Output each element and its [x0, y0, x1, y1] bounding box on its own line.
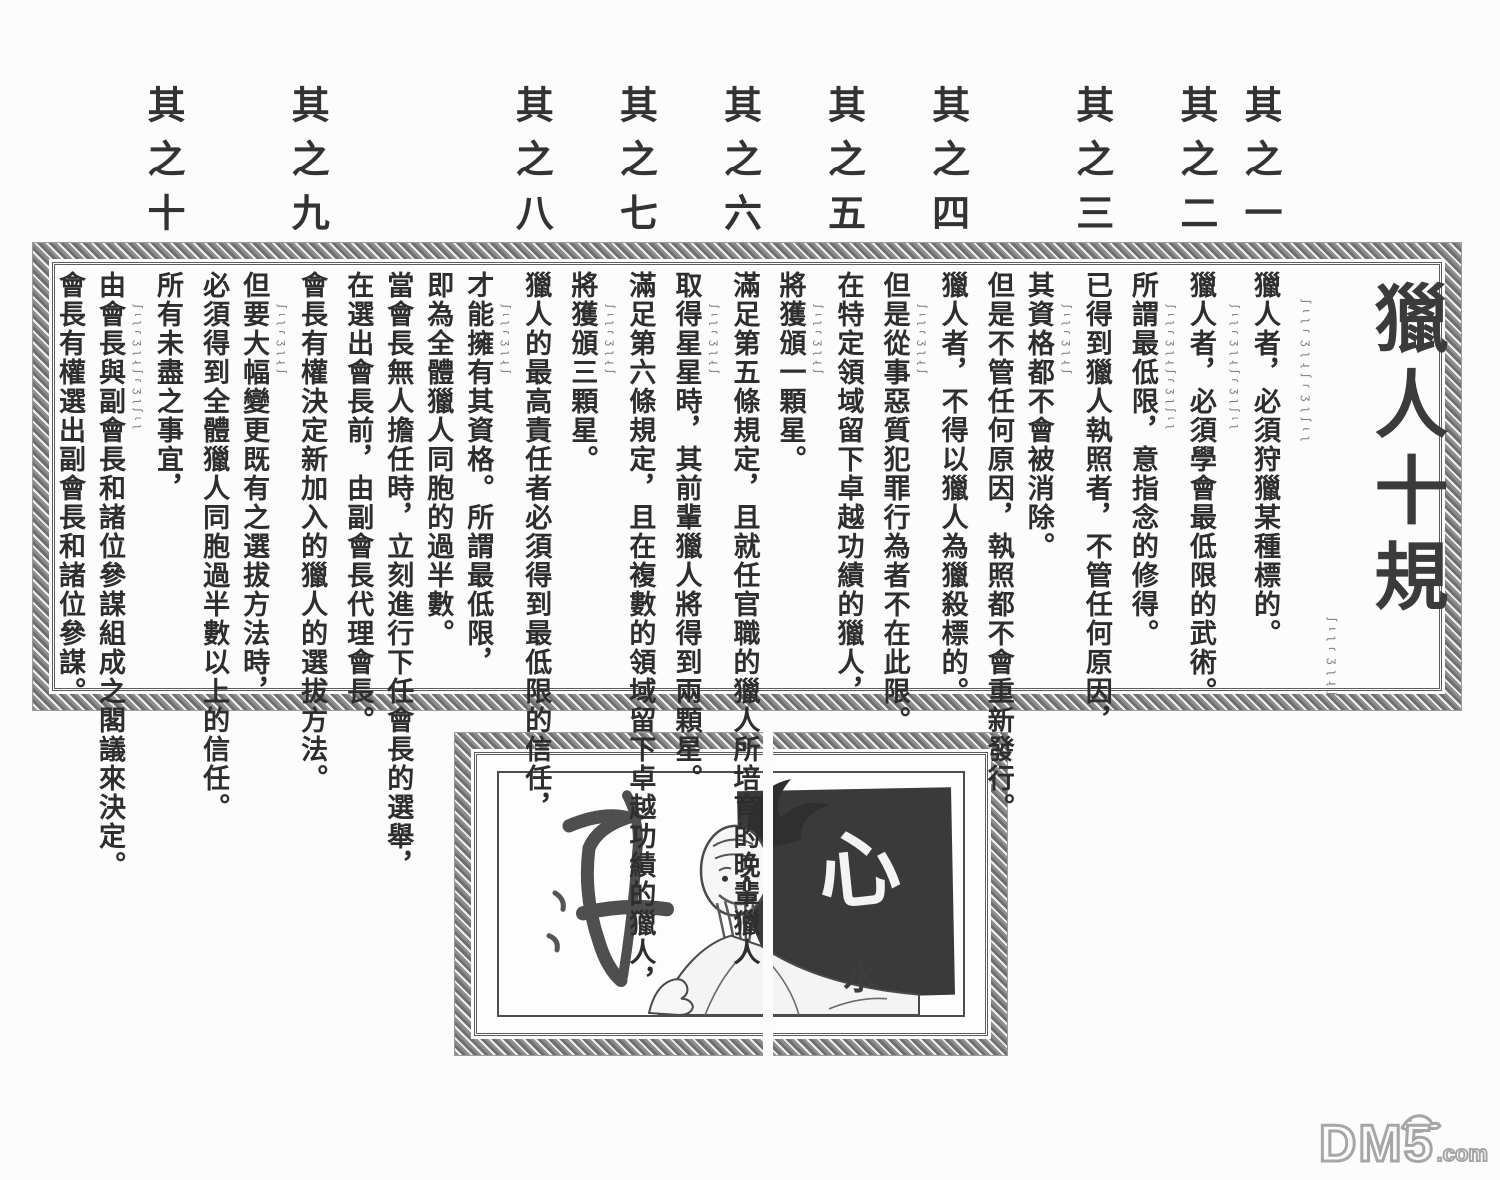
rule-5-header: 其之五 [822, 85, 864, 253]
dm5-watermark: DM5.com [1319, 1114, 1488, 1174]
rule-column: 當會長無人擔任時，立刻進行下任會長的選舉， [383, 271, 413, 880]
rule-column: 滿足第六條規定，且在複數的領域留下卓越功績的獵人， [625, 271, 655, 996]
rule-8-body: 獵人的最高責任者必須得到最低限的信任， ʃɩʅɾʒʅɻʃ 才能擁有其資格。所謂最… [333, 271, 551, 880]
rule-column: 即為全體獵人同胞的過半數。 [423, 271, 453, 880]
rule-column: 但要大幅變更既有之選拔方法時， [239, 271, 269, 822]
hunter-script-column: ʃɩʅɾʒʅɻʃɾʒʅʃɩʅ [1229, 305, 1240, 648]
rule-column: 獵人者，不得以獵人為獵殺標的。 [938, 271, 968, 735]
rule-column: 在特定領域留下卓越功績的獵人， [834, 271, 864, 706]
rule-column: 由會長與副會長和諸位參謀組成之閣議來決定。 [95, 271, 125, 880]
hunter-script-column: ʃɩʅɾʒʅɻʃ [604, 305, 615, 996]
rule-1: 其之一 獵人者，必須狩獵某種標的。 ʃɩʅɾʒʅɻʃɾʒʅʃɩʅ [1222, 85, 1280, 648]
rule-column: 取得星星時，其前輩獵人將得到兩顆星。 [671, 271, 701, 967]
rule-column: 才能擁有其資格。所謂最低限， [463, 271, 493, 880]
rule-column: 獵人者，必須學會最低限的武術。 [1186, 271, 1216, 706]
rule-9-body: 會長有權決定新加入的獵人的選拔方法。 ʃɩʅɾʒʅɻʃ 但要大幅變更既有之選拔方… [189, 271, 327, 822]
hunter-script-column: ʃɩʅɾʒʅɻʃ [813, 305, 824, 706]
rule-column: 會長有權決定新加入的獵人的選拔方法。 [297, 271, 327, 822]
rule-5-body: 在特定領域留下卓越功績的獵人， ʃɩʅɾʒʅɻʃ 將獲頒一顆星。 [766, 271, 864, 706]
rule-column: 在選出會長前，由副會長代理會長。 [343, 271, 373, 880]
hunter-script-column: ʃɩʅɾʒʅɻʃɾʒʅʃɩʅ [1300, 300, 1314, 447]
rule-column: 所有未盡之事宜， [153, 271, 183, 880]
rule-column: 獵人的最高責任者必須得到最低限的信任， [521, 271, 551, 880]
page-title: 獵人十規 [1352, 280, 1459, 624]
rule-column: 必須得到全體獵人同胞過半數以上的信任。 [199, 271, 229, 822]
hunter-script-column: ʃɩʅɾʒʅɻʃ [917, 305, 928, 735]
rule-4-header: 其之四 [926, 85, 968, 253]
hunter-script-column: ʃɩʅɾʒʅɻʃɾʒʅʃɩʅ [132, 305, 143, 880]
rule-column: 但是不管任何原因，執照都不會重新發行。 [984, 271, 1014, 822]
rule-10: 其之十 所有未盡之事宜， ʃɩʅɾʒʅɻʃɾʒʅʃɩʅ 由會長與副會長和諸位參謀… [45, 85, 183, 880]
rule-column: 但是從事惡質犯罪行為者不在此限。 [880, 271, 910, 735]
rule-8-header: 其之八 [509, 85, 551, 253]
rule-6: 其之六 滿足第五條規定，且就任官職的獵人所培育的晚輩獵人 ʃɩʅɾʒʅɻʃ 取得… [661, 85, 759, 967]
rule-6-header: 其之六 [717, 85, 759, 253]
rule-10-body: 所有未盡之事宜， ʃɩʅɾʒʅɻʃɾʒʅʃɩʅ 由會長與副會長和諸位參謀組成之閣… [45, 271, 183, 880]
rule-column: 所謂最低限，意指念的修得。 [1128, 271, 1158, 706]
rule-column: 將獲頒一顆星。 [776, 271, 806, 706]
rule-6-body: 滿足第五條規定，且就任官職的獵人所培育的晚輩獵人 ʃɩʅɾʒʅɻʃ 取得星星時，… [661, 271, 759, 967]
hunter-script-column: ʃɩʅɾʒʅɻʃ [1061, 305, 1072, 822]
rule-2: 其之二 獵人者，必須學會最低限的武術。 ʃɩʅɾʒʅɻʃɾʒʅʃɩʅ 所謂最低限… [1118, 85, 1216, 706]
watermark-text: DM5 [1319, 1114, 1435, 1174]
rule-column: 其資格都不會被消除。 [1024, 271, 1054, 822]
hunter-script-column: ʃɩʅɾʒʅɻʃ [500, 305, 511, 880]
rule-1-header: 其之一 [1238, 85, 1280, 253]
watermark-suffix: .com [1437, 1141, 1488, 1167]
rule-1-body: 獵人者，必須狩獵某種標的。 ʃɩʅɾʒʅɻʃɾʒʅʃɩʅ [1222, 271, 1280, 648]
hunter-script-column: ʃɩʅɾʒʅɻʃ [276, 305, 287, 822]
rule-3: 其之三 已得到獵人執照者，不管任何原因， ʃɩʅɾʒʅɻʃ 其資格都不會被消除。… [974, 85, 1112, 822]
rule-column: 已得到獵人執照者，不管任何原因， [1082, 271, 1112, 822]
rule-9: 其之九 會長有權決定新加入的獵人的選拔方法。 ʃɩʅɾʒʅɻʃ 但要大幅變更既有… [189, 85, 327, 822]
hunter-script-column: ʃɩʅɾʒʅɻʃɾʒʅʃɩʅ [1165, 305, 1176, 706]
rule-9-header: 其之九 [285, 85, 327, 253]
rule-5: 其之五 在特定領域留下卓越功績的獵人， ʃɩʅɾʒʅɻʃ 將獲頒一顆星。 [766, 85, 864, 706]
rule-column: 滿足第五條規定，且就任官職的獵人所培育的晚輩獵人 [729, 271, 759, 967]
rule-column: 將獲頒三顆星。 [567, 271, 597, 996]
rule-4-body: 獵人者，不得以獵人為獵殺標的。 ʃɩʅɾʒʅɻʃ 但是從事惡質犯罪行為者不在此限… [870, 271, 968, 735]
rule-8: 其之八 獵人的最高責任者必須得到最低限的信任， ʃɩʅɾʒʅɻʃ 才能擁有其資格… [333, 85, 551, 880]
hunter-script-column: ʃɩʅɾʒʅɻʃ [1326, 618, 1340, 702]
rule-7-header: 其之七 [613, 85, 655, 253]
rule-2-header: 其之二 [1174, 85, 1216, 253]
rule-3-body: 已得到獵人執照者，不管任何原因， ʃɩʅɾʒʅɻʃ 其資格都不會被消除。 但是不… [974, 271, 1112, 822]
rule-7-body: 滿足第六條規定，且在複數的領域留下卓越功績的獵人， ʃɩʅɾʒʅɻʃ 將獲頒三顆… [557, 271, 655, 996]
rule-3-header: 其之三 [1070, 85, 1112, 253]
rule-4: 其之四 獵人者，不得以獵人為獵殺標的。 ʃɩʅɾʒʅɻʃ 但是從事惡質犯罪行為者… [870, 85, 968, 735]
rule-column: 獵人者，必須狩獵某種標的。 [1250, 271, 1280, 648]
rule-7: 其之七 滿足第六條規定，且在複數的領域留下卓越功績的獵人， ʃɩʅɾʒʅɻʃ 將… [557, 85, 655, 996]
rules-list: 其之一 獵人者，必須狩獵某種標的。 ʃɩʅɾʒʅɻʃɾʒʅʃɩʅ 其之二 獵人者… [45, 85, 1280, 996]
rule-column: 會長有權選出副會長和諸位參謀。 [55, 271, 85, 880]
rule-10-header: 其之十 [141, 85, 183, 253]
rule-2-body: 獵人者，必須學會最低限的武術。 ʃɩʅɾʒʅɻʃɾʒʅʃɩʅ 所謂最低限，意指念… [1118, 271, 1216, 706]
hunter-script-column: ʃɩʅɾʒʅɻʃ [708, 305, 719, 967]
manga-page: 獵人十規 ʃɩʅɾʒʅɻʃɾʒʅʃɩʅ ʃɩʅɾʒʅɻʃ 其之一 獵人者，必須狩… [0, 0, 1500, 1180]
